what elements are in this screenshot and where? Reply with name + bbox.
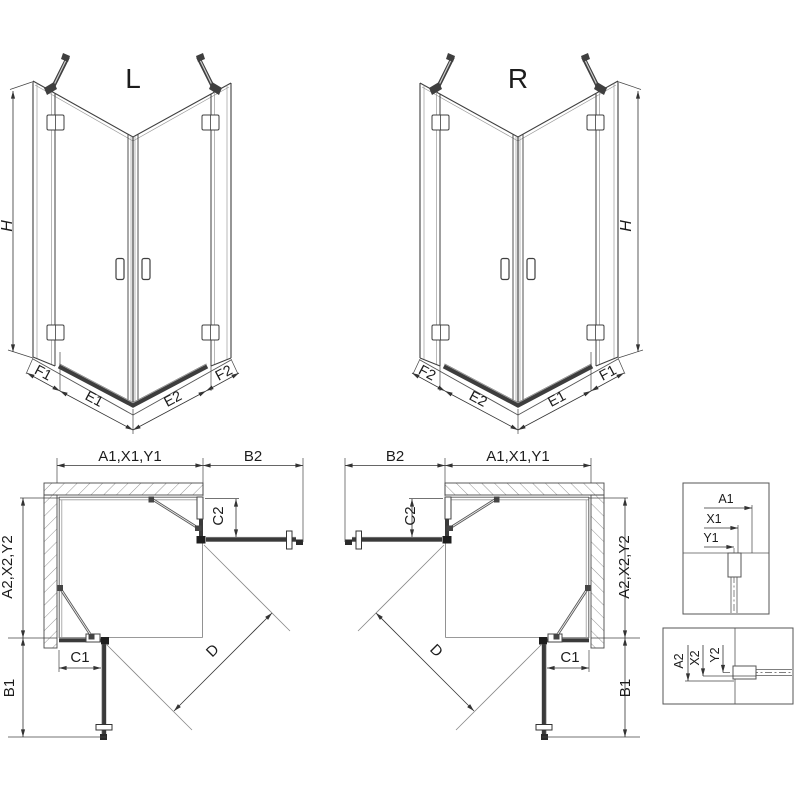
- seg-label-l-e1: E1: [82, 388, 105, 410]
- drawing-canvas: L H F1 E1 E2 F2 R H F2 E2 E1 F1 A1,X1,Y1…: [0, 0, 800, 800]
- seg-label-l-e2: E2: [162, 388, 185, 410]
- plan-l-c2-dim: C2: [210, 506, 227, 525]
- detail-a1-label: A1: [718, 492, 733, 506]
- height-label-left: H: [0, 220, 16, 232]
- plan-view-left: [8, 458, 303, 740]
- detail-a2-label: A2: [672, 653, 686, 668]
- detail-x1-label: X1: [706, 512, 721, 526]
- height-label-right: H: [618, 220, 635, 232]
- plan-l-d-dim: D: [203, 641, 223, 661]
- plan-r-d-dim: D: [426, 641, 446, 661]
- plan-l-side-dim: A2,X2,Y2: [0, 535, 16, 598]
- detail-y2-label: Y2: [708, 647, 722, 662]
- seg-label-r-f2: F2: [416, 362, 438, 384]
- view-label-right: R: [508, 63, 528, 94]
- plan-r-top-dim: A1,X1,Y1: [486, 448, 549, 465]
- view-label-left: L: [125, 63, 141, 94]
- detail-y1-label: Y1: [703, 531, 718, 545]
- plan-r-c2-dim: C2: [402, 506, 419, 525]
- plan-r-b1-dim: B1: [617, 679, 634, 697]
- technical-drawing: L H F1 E1 E2 F2 R H F2 E2 E1 F1 A1,X1,Y1…: [0, 0, 800, 800]
- plan-r-b2-dim: B2: [386, 448, 404, 465]
- plan-l-b1-dim: B1: [1, 679, 18, 697]
- detail-x2-label: X2: [688, 650, 702, 665]
- plan-l-b2-dim: B2: [244, 448, 262, 465]
- plan-view-right: [345, 458, 640, 740]
- plan-l-top-dim: A1,X1,Y1: [98, 448, 161, 465]
- plan-r-c1-dim: C1: [560, 649, 579, 666]
- seg-label-r-e1: E1: [546, 388, 569, 410]
- plan-r-side-dim: A2,X2,Y2: [616, 535, 633, 598]
- seg-label-r-e2: E2: [466, 388, 489, 410]
- plan-l-c1-dim: C1: [70, 649, 89, 666]
- seg-label-l-f2: F2: [213, 362, 235, 384]
